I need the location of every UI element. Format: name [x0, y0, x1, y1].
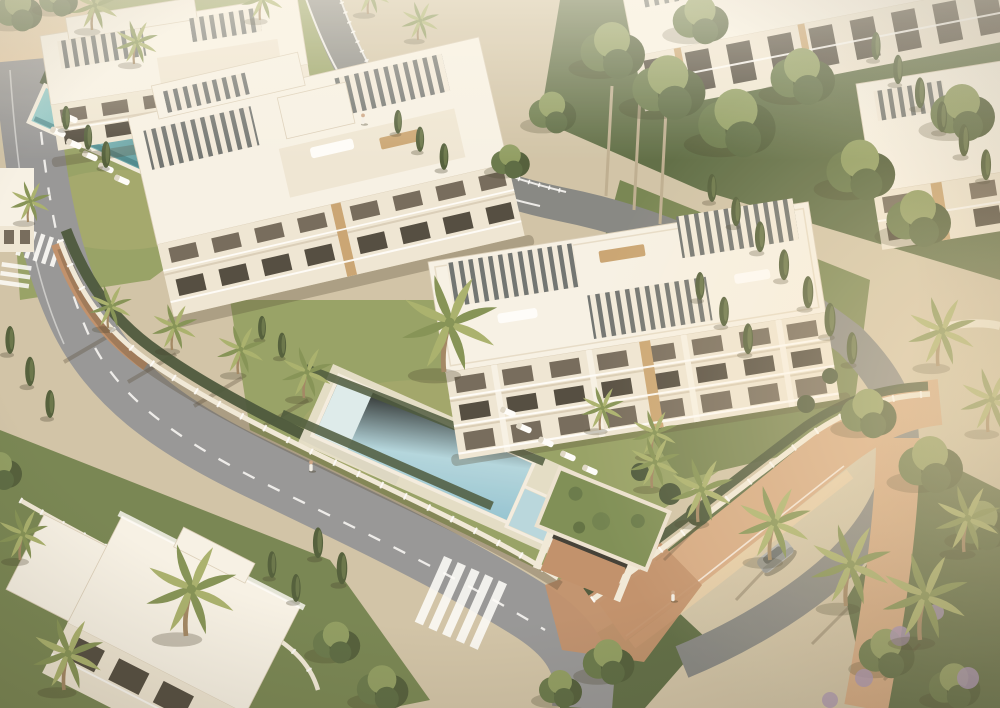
lighting [0, 0, 1000, 708]
vignette [0, 0, 1000, 708]
aerial-render [0, 0, 1000, 708]
aerial-render-scene [0, 0, 1000, 708]
